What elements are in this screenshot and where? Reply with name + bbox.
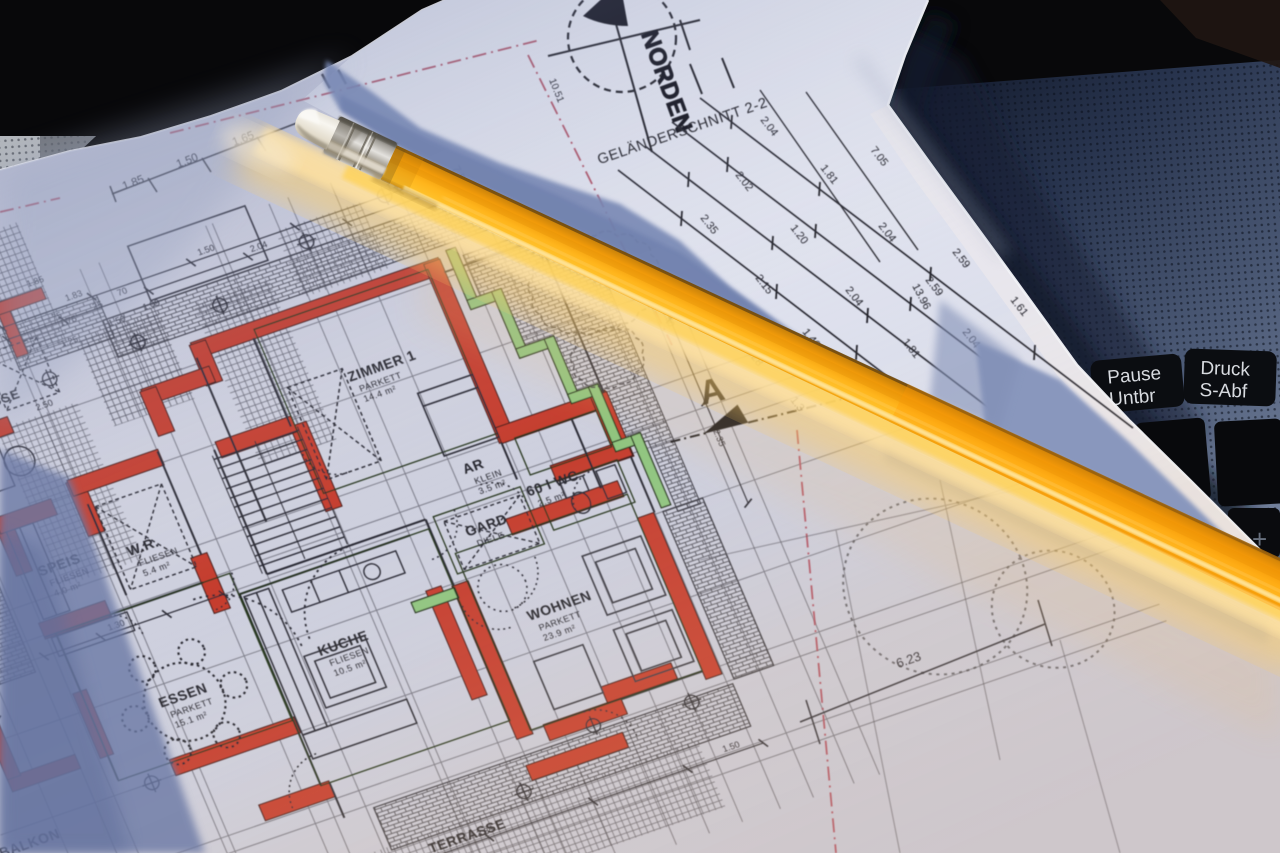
svg-text:Druck: Druck (1200, 358, 1251, 381)
svg-text:S-Abf: S-Abf (1199, 380, 1248, 403)
